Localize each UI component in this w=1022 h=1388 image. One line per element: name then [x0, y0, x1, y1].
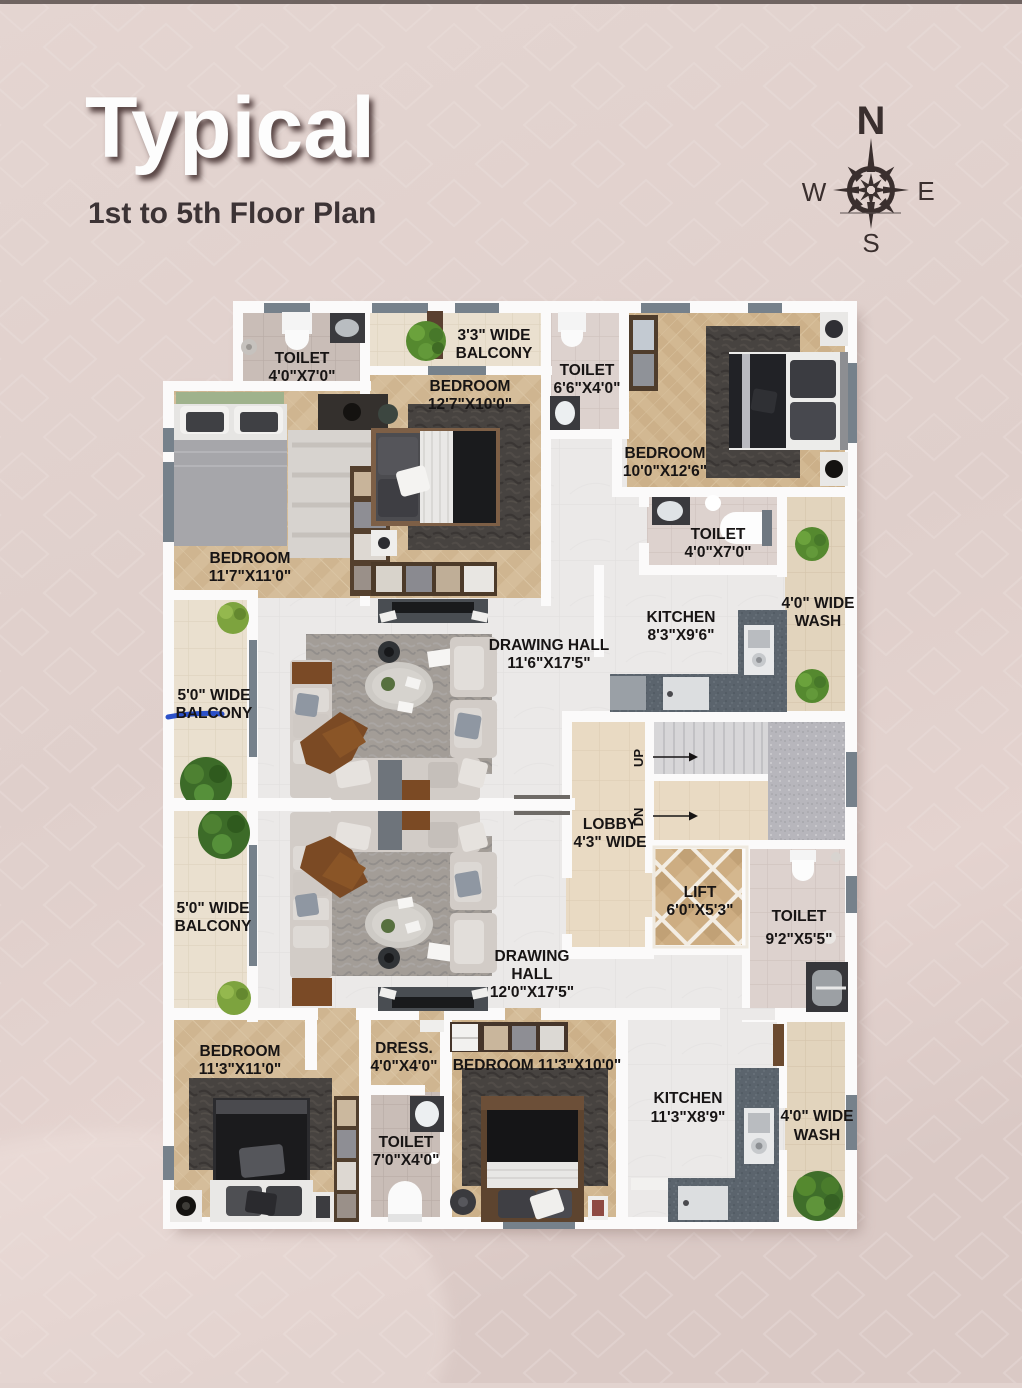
svg-text:11'3"X11'0": 11'3"X11'0": [199, 1061, 281, 1078]
svg-text:LOBBY: LOBBY: [583, 816, 638, 833]
svg-text:6'0"X5'3": 6'0"X5'3": [667, 902, 734, 919]
svg-text:12'7"X10'0": 12'7"X10'0": [428, 396, 512, 413]
svg-text:HALL: HALL: [511, 966, 552, 983]
svg-text:BEDROOM: BEDROOM: [430, 378, 511, 395]
svg-text:11'6"X17'5": 11'6"X17'5": [507, 655, 590, 672]
svg-text:9'2"X5'5": 9'2"X5'5": [766, 931, 833, 948]
svg-text:BALCONY: BALCONY: [175, 918, 252, 935]
svg-text:6'6"X4'0": 6'6"X4'0": [554, 380, 621, 397]
svg-text:DRAWING: DRAWING: [495, 948, 570, 965]
svg-text:BALCONY: BALCONY: [456, 345, 533, 362]
svg-text:12'0"X17'5": 12'0"X17'5": [490, 984, 574, 1001]
svg-text:4'0"X7'0": 4'0"X7'0": [269, 368, 336, 385]
svg-text:1st to 5th Floor Plan: 1st to 5th Floor Plan: [88, 197, 376, 230]
svg-text:4'0" WIDE: 4'0" WIDE: [781, 595, 854, 612]
svg-text:BEDROOM: BEDROOM: [625, 445, 706, 462]
svg-text:UP: UP: [631, 749, 646, 767]
svg-text:4'0"X4'0": 4'0"X4'0": [371, 1058, 438, 1075]
svg-text:4'0" WIDE: 4'0" WIDE: [780, 1108, 853, 1125]
svg-text:S: S: [862, 228, 879, 258]
svg-text:4'3" WIDE: 4'3" WIDE: [573, 834, 646, 851]
svg-text:W: W: [802, 177, 827, 207]
svg-text:TOILET: TOILET: [691, 526, 746, 543]
svg-text:WASH: WASH: [794, 1127, 841, 1144]
svg-text:DN: DN: [631, 808, 646, 827]
svg-text:7'0"X4'0": 7'0"X4'0": [373, 1152, 440, 1169]
svg-text:11'3"X8'9": 11'3"X8'9": [651, 1109, 726, 1126]
svg-text:5'0" WIDE: 5'0" WIDE: [176, 900, 249, 917]
svg-text:Typical: Typical: [85, 80, 375, 176]
svg-text:4'0"X7'0": 4'0"X7'0": [685, 544, 752, 561]
svg-text:11'7"X11'0": 11'7"X11'0": [209, 568, 291, 585]
svg-text:KITCHEN: KITCHEN: [654, 1090, 723, 1107]
svg-text:DRAWING HALL: DRAWING HALL: [489, 637, 610, 654]
svg-text:BEDROOM 11'3"X10'0": BEDROOM 11'3"X10'0": [453, 1057, 622, 1074]
svg-text:WASH: WASH: [795, 613, 842, 630]
svg-text:10'0"X12'6": 10'0"X12'6": [623, 463, 707, 480]
svg-text:TOILET: TOILET: [379, 1134, 434, 1151]
svg-text:TOILET: TOILET: [275, 350, 330, 367]
svg-text:BEDROOM: BEDROOM: [200, 1043, 281, 1060]
svg-text:E: E: [917, 176, 934, 206]
svg-text:TOILET: TOILET: [772, 908, 827, 925]
svg-text:TOILET: TOILET: [560, 362, 615, 379]
svg-text:8'3"X9'6": 8'3"X9'6": [648, 627, 715, 644]
svg-text:BEDROOM: BEDROOM: [210, 550, 291, 567]
svg-text:5'0" WIDE: 5'0" WIDE: [177, 687, 250, 704]
svg-text:DRESS.: DRESS.: [375, 1040, 433, 1057]
svg-text:KITCHEN: KITCHEN: [647, 609, 716, 626]
svg-text:BALCONY: BALCONY: [176, 705, 253, 722]
svg-text:N: N: [857, 99, 886, 143]
svg-text:3'3" WIDE: 3'3" WIDE: [457, 327, 530, 344]
svg-text:LIFT: LIFT: [684, 884, 717, 901]
